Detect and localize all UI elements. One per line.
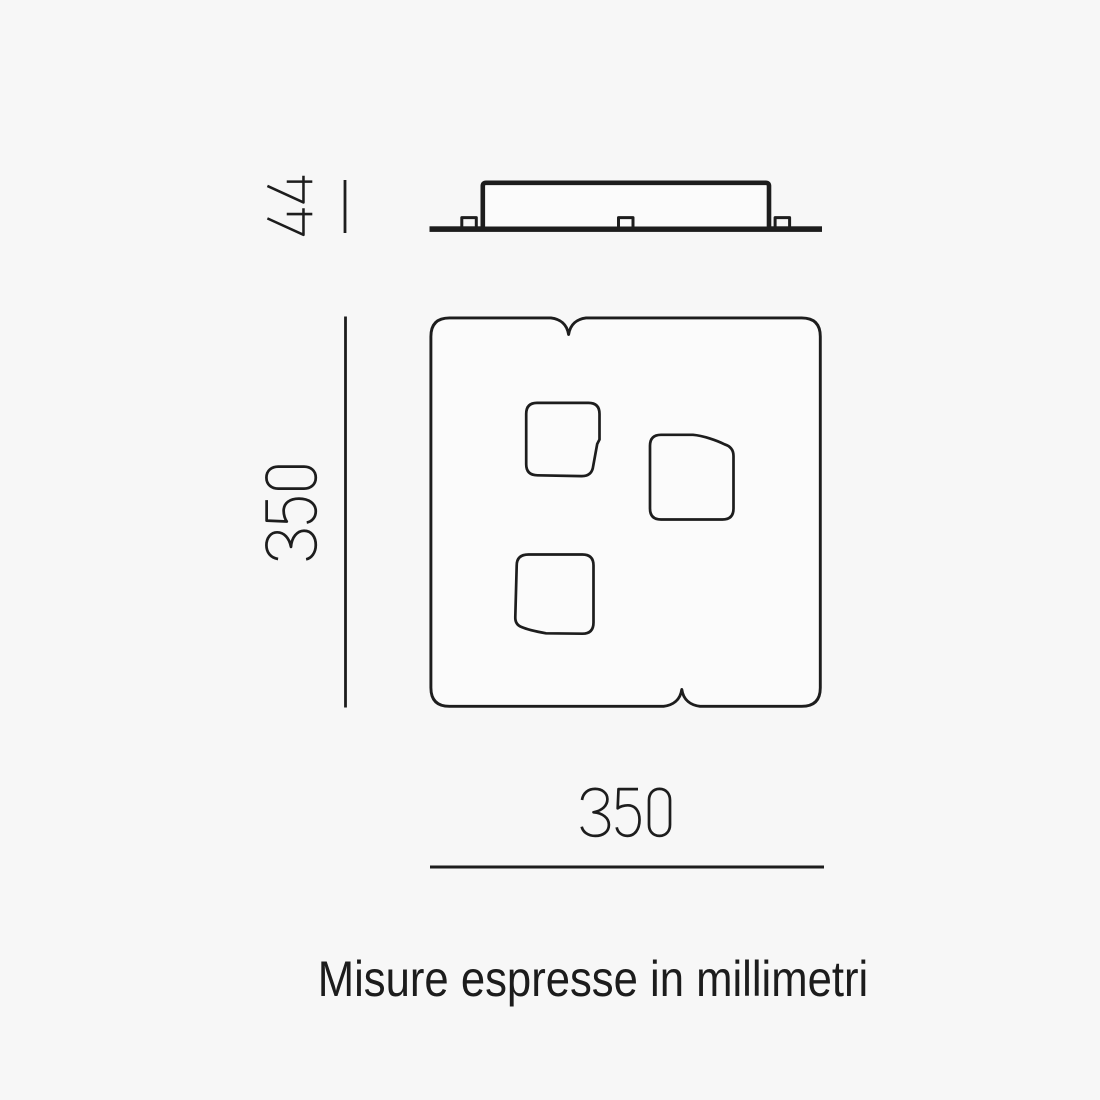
- svg-text:Misure espresse in millimetri: Misure espresse in millimetri: [318, 951, 868, 1006]
